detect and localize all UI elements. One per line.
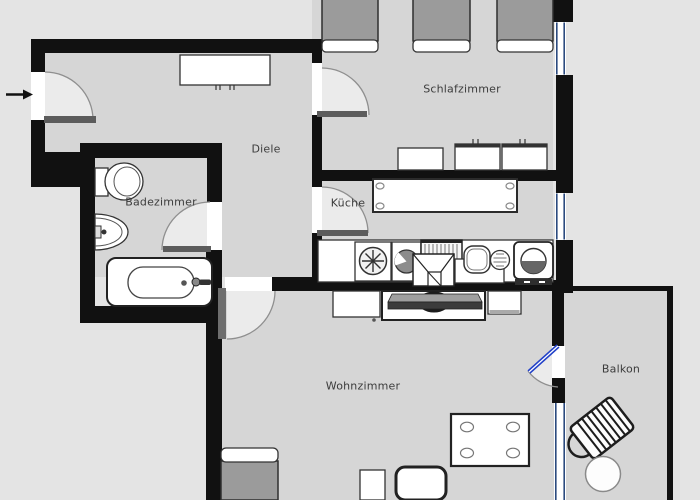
washing-machine (355, 242, 391, 281)
bathtub (107, 258, 212, 306)
bed (322, 0, 378, 52)
sofa (221, 448, 278, 500)
floorplan-canvas: Diele Schlafzimmer Badezimmer Küche Wohn… (0, 0, 700, 500)
bedroom-cabinet (502, 139, 547, 170)
dining-table (451, 414, 529, 466)
kitchen-hood-sink (413, 254, 454, 286)
room-label-badezimmer: Badezimmer (125, 196, 197, 209)
balcony-railing-right (667, 286, 673, 500)
window-bedroom (555, 22, 566, 75)
bed (413, 0, 470, 52)
tv-cabinet-left (333, 291, 380, 322)
bathtub-faucet (192, 278, 200, 286)
room-label-wohnzimmer: Wohnzimmer (326, 380, 400, 393)
entrance-arrow-icon (6, 90, 33, 100)
room-label-kueche: Küche (331, 197, 365, 210)
oven (514, 242, 553, 285)
bathtub-drain (181, 280, 187, 286)
floorplan-drawing (0, 0, 700, 500)
hallway-wardrobe (180, 55, 270, 90)
toilet (95, 163, 143, 200)
bedroom-cabinet (455, 139, 500, 170)
window-kitchen (555, 193, 566, 240)
room-label-balkon: Balkon (602, 363, 640, 376)
tv (388, 292, 482, 313)
window-living (554, 403, 566, 500)
chair (360, 470, 385, 500)
bedroom-dresser (398, 148, 443, 170)
room-label-schlafzimmer: Schlafzimmer (423, 83, 501, 96)
bed (497, 0, 553, 52)
balcony-table (586, 457, 621, 492)
tv-cabinet-right (488, 291, 521, 314)
armchair (396, 467, 446, 500)
kitchen-table (373, 179, 517, 212)
balcony-railing-top (570, 286, 673, 291)
room-label-diele: Diele (251, 143, 280, 156)
